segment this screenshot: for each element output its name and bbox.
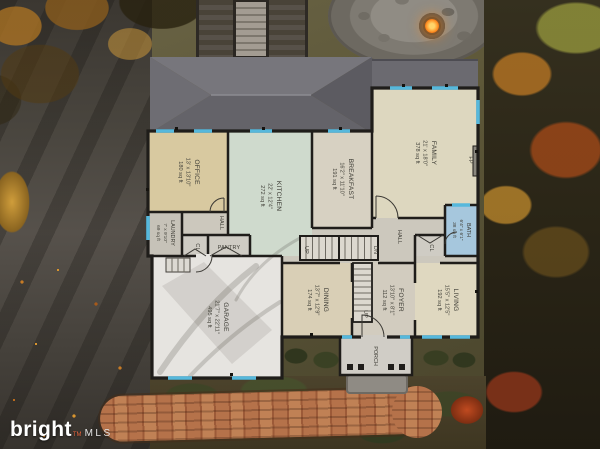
room-dims: 7' x 9'10": [162, 223, 168, 243]
room-area: 112 sq ft: [381, 289, 387, 310]
hall-left-label: HALL: [218, 216, 224, 230]
logo-brand-text: bright: [10, 418, 72, 442]
room-dims: 21' x 18'0": [422, 140, 428, 166]
room-dims: 13' x 13'10": [185, 158, 191, 187]
room-area: 191 sq ft: [331, 168, 337, 190]
room-dims: 22' x 12'4": [267, 183, 273, 209]
room-dims: 13'7" x 12'9": [314, 285, 320, 316]
porch-column: [399, 364, 405, 370]
room-area: 180 sq ft: [177, 161, 183, 183]
room-area: 272 sq ft: [259, 185, 265, 207]
room-dims: 21'7" x 22'11": [214, 300, 220, 333]
room-area: 192 sq ft: [436, 289, 442, 311]
room-name: LAUNDRY: [169, 220, 175, 246]
room-name: BREAKFAST: [347, 159, 354, 200]
room-area: 378 sq ft: [414, 142, 420, 164]
room-label-office: OFFICE 13' x 13'10" 180 sq ft: [177, 158, 200, 187]
closet-left-label: CL: [194, 243, 200, 250]
fireplace-label: FP: [467, 156, 473, 163]
closet-right-label: CL: [428, 244, 434, 251]
garage-entry-steps: [166, 258, 190, 272]
room-label-family: FAMILY 21' x 18'0" 378 sq ft: [414, 140, 437, 166]
main-stairs: [300, 236, 378, 260]
pantry-label: PANTRY: [218, 245, 241, 251]
room-dims: 6'4" x 6'1": [458, 220, 464, 241]
porch-column: [358, 364, 364, 370]
floor-plan-overlay: OFFICE 13' x 13'10" 180 sq ft KITCHEN 22…: [0, 0, 600, 449]
room-name: DINING: [322, 288, 329, 312]
room-dims: 15'5" x 12'5": [444, 285, 450, 316]
porch-column: [347, 364, 353, 370]
room-name: GARAGE: [222, 302, 229, 332]
room-name: OFFICE: [193, 159, 200, 185]
stairs-up-label: UP: [303, 246, 309, 254]
stairs-down-label: DN: [372, 246, 378, 254]
room-name: FOYER: [397, 288, 404, 312]
aerial-photo-floorplan: OFFICE 13' x 13'10" 180 sq ft KITCHEN 22…: [0, 0, 600, 449]
room-area: 69 sq ft: [155, 225, 161, 241]
foyer-stairs-up-label: UP: [362, 310, 368, 318]
room-dims: 13'10" x 8'1": [389, 285, 395, 316]
room-area: 38 sq ft: [451, 222, 457, 238]
room-dims: 16'2" x 11'10": [339, 162, 345, 195]
room-area: 495 sq ft: [206, 306, 212, 328]
room-area: 174 sq ft: [306, 289, 312, 311]
hall-right-label: HALL: [396, 230, 402, 244]
logo-mls-text: MLS: [85, 428, 113, 439]
room-name: PORCH: [372, 346, 378, 366]
porch-column: [388, 364, 394, 370]
room-name: BATH: [465, 223, 471, 237]
brightmls-logo: bright TM MLS: [10, 418, 113, 442]
room-name: FAMILY: [430, 141, 437, 166]
room-name: KITCHEN: [275, 181, 282, 211]
room-label-kitchen: KITCHEN 22' x 12'4" 272 sq ft: [259, 181, 282, 211]
room-name: LIVING: [452, 289, 459, 312]
logo-trademark: TM: [73, 432, 82, 438]
room-label-porch: PORCH: [372, 346, 378, 366]
